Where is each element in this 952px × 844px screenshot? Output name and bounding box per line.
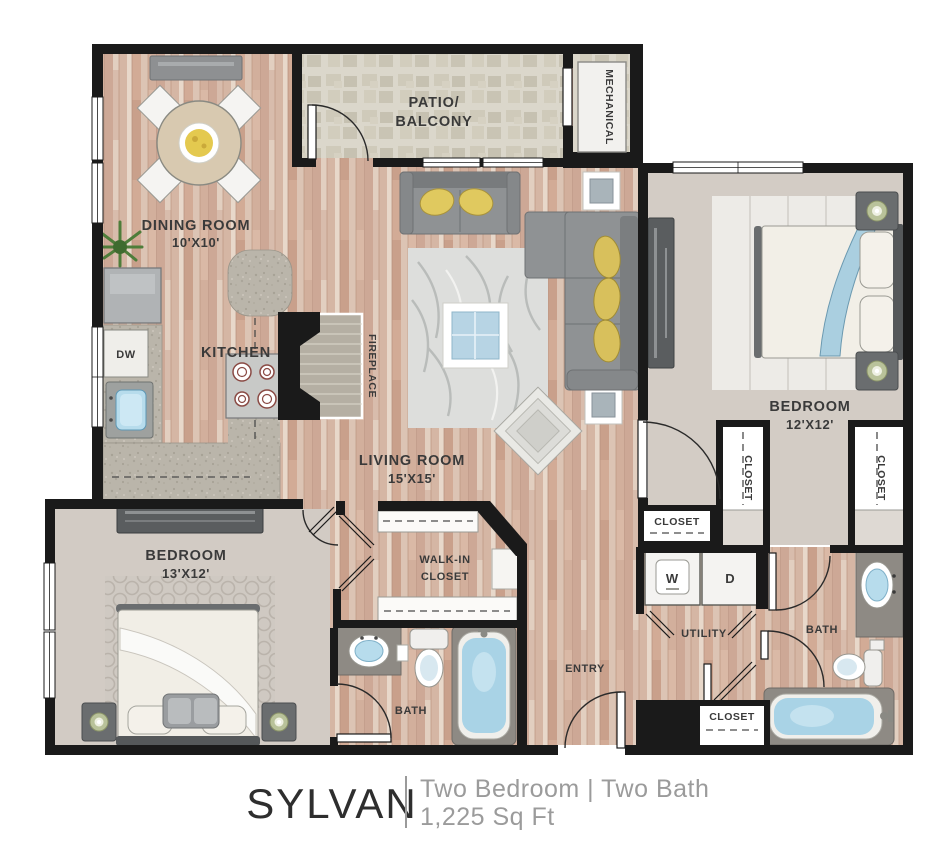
patio-label-1: PATIO/	[409, 95, 460, 111]
mechanical-label-box	[578, 62, 626, 152]
plan-name: SYLVAN	[246, 780, 418, 827]
nightstand	[262, 703, 296, 741]
hall-closet-label: CLOSET	[654, 516, 700, 528]
toilet-paper	[870, 640, 884, 650]
closet-label-vertical: CLOSET	[742, 455, 754, 501]
patio-label-2: BALCONY	[395, 114, 472, 130]
bath-right-label: BATH	[806, 624, 838, 636]
bed	[754, 224, 903, 360]
nightstand	[82, 703, 116, 741]
closet-cabinet	[492, 549, 518, 589]
window	[483, 158, 543, 167]
loveseat	[400, 172, 520, 234]
coffee-table	[443, 303, 508, 368]
entry-label: ENTRY	[565, 663, 605, 675]
towel-bar	[397, 645, 408, 661]
plan-area: 1,225 Sq Ft	[420, 803, 555, 831]
sideboard	[150, 56, 242, 80]
side-table	[583, 172, 620, 210]
living-room-dims: 15'X15'	[388, 471, 436, 486]
bathtub	[764, 688, 894, 745]
window	[423, 158, 480, 167]
floor-plan-svg: DW FIREPLACE	[0, 0, 952, 844]
entry-closet-label: CLOSET	[709, 711, 755, 723]
mechanical-door	[563, 68, 572, 126]
kitchen-label: KITCHEN	[201, 345, 271, 361]
counter-bottom	[103, 443, 280, 500]
footer: SYLVAN Two Bedroom | Two Bath 1,225 Sq F…	[246, 775, 709, 831]
closet-shelf	[378, 511, 478, 532]
bath-left-label: BATH	[395, 705, 427, 717]
side-table	[585, 386, 622, 424]
counter-peninsula	[228, 416, 280, 446]
window	[673, 162, 803, 173]
closet-label-vertical: CLOSET	[875, 455, 887, 501]
window	[44, 632, 55, 698]
washer-label: W	[666, 571, 679, 586]
dishwasher-label: DW	[116, 349, 136, 361]
pillow	[860, 232, 894, 288]
living-room-label: LIVING ROOM	[359, 453, 465, 469]
fireplace-label: FIREPLACE	[366, 334, 378, 398]
bedroom-right-label: BEDROOM	[769, 399, 850, 415]
dining-room-label: DINING ROOM	[142, 218, 251, 234]
window	[92, 163, 103, 223]
fireplace: FIREPLACE	[278, 312, 378, 420]
counter-cap	[228, 250, 292, 316]
nightstand	[856, 352, 898, 390]
bedroom-left-label: BEDROOM	[145, 548, 226, 564]
window	[44, 563, 55, 630]
window	[92, 97, 103, 160]
mechanical-label: MECHANICAL	[603, 69, 615, 145]
headboard	[893, 224, 903, 360]
window	[92, 327, 103, 427]
bed	[116, 604, 260, 746]
headboard	[116, 736, 260, 746]
stove	[226, 354, 282, 418]
dresser	[648, 218, 674, 368]
bedroom-left-dims: 13'X12'	[162, 566, 210, 581]
bedroom-right-dims: 12'X12'	[786, 417, 834, 432]
bathtub	[452, 626, 516, 745]
walk-in-label-2: CLOSET	[421, 571, 469, 583]
dryer-label: D	[725, 571, 734, 586]
nightstand	[856, 192, 898, 230]
floor-plan-page: DW FIREPLACE	[0, 0, 952, 844]
plan-type: Two Bedroom | Two Bath	[420, 775, 709, 803]
dining-room-dims: 10'X10'	[172, 235, 220, 250]
pillow	[860, 296, 894, 352]
walk-in-label-1: WALK-IN	[419, 554, 470, 566]
kitchen-sink	[106, 382, 153, 438]
utility-label: UTILITY	[681, 628, 727, 640]
media-console	[117, 505, 263, 533]
